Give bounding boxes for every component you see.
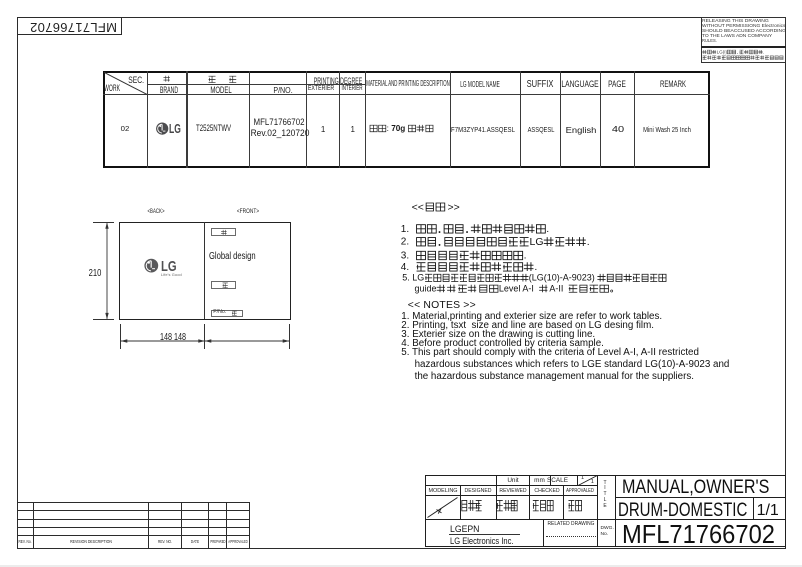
svg-text:guide: guide bbox=[415, 283, 437, 293]
svg-text:1.: 1. bbox=[401, 224, 409, 235]
svg-text:<<: << bbox=[412, 202, 424, 214]
svg-text:>>: >> bbox=[448, 202, 460, 214]
svg-text:LG(I): LG(I) bbox=[717, 49, 728, 54]
svg-text:LG: LG bbox=[530, 236, 544, 248]
svg-text:Level A-I: Level A-I bbox=[499, 283, 534, 293]
svg-text:(LG(10)-A-9023): (LG(10)-A-9023) bbox=[529, 273, 595, 283]
svg-text:70g: 70g bbox=[391, 124, 405, 133]
svg-text:.: . bbox=[763, 49, 764, 54]
svg-text:.: . bbox=[546, 223, 549, 235]
svg-text:5.: 5. bbox=[402, 273, 410, 283]
svg-text:.: . bbox=[534, 261, 537, 273]
svg-text:4.: 4. bbox=[401, 262, 409, 273]
svg-text:.: . bbox=[524, 250, 527, 262]
svg-text::: : bbox=[387, 124, 389, 133]
svg-text:A-II: A-II bbox=[549, 283, 563, 293]
svg-text:2.: 2. bbox=[401, 237, 409, 248]
svg-text:.: . bbox=[587, 236, 590, 248]
svg-text:LG: LG bbox=[412, 273, 424, 283]
svg-text:3.: 3. bbox=[401, 250, 409, 261]
